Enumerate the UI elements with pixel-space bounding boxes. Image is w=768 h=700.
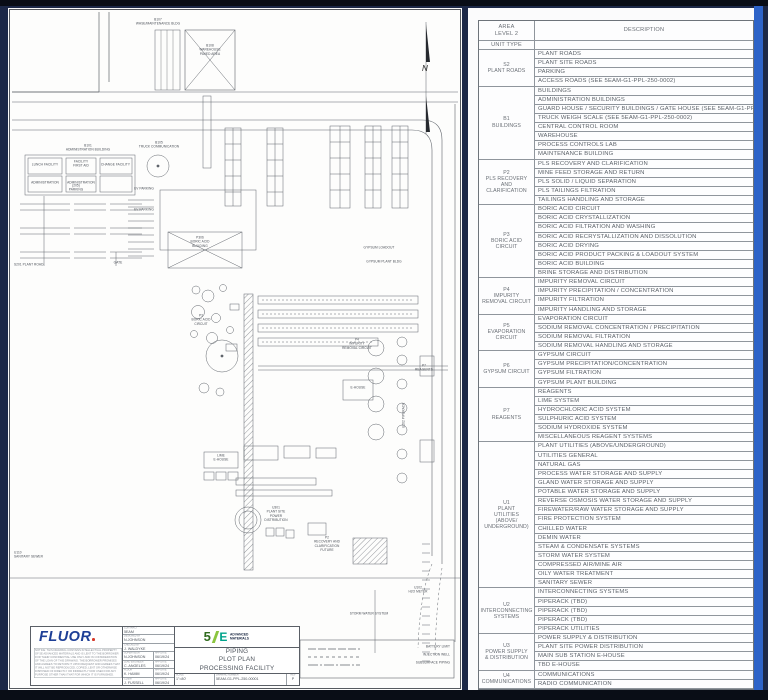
plot-label: EV PARKING — [124, 208, 164, 212]
plot-label: U202 PIPERACK — [402, 368, 406, 428]
legend-group-s2: S2 PLANT ROADS — [479, 50, 535, 87]
legend-injection-well-label: INJECTION WELL — [392, 653, 450, 657]
fluor-dot-icon — [92, 638, 95, 641]
plot-label: P4 IMPURITY REMOVAL CIRCUIT — [332, 338, 382, 350]
legend-row: STEAM & CONDENSATE SYSTEMS — [535, 543, 753, 552]
legend-row: BUILDINGS — [535, 87, 753, 96]
title-field-value: J. FUSSELL — [124, 682, 152, 685]
legend-row: CENTRAL CONTROL ROOM — [535, 123, 753, 132]
title-field-row: CHECKED BYJ. WALDYKE — [123, 644, 174, 652]
legend-row: COMMUNICATIONS — [535, 671, 753, 680]
legend-row: IMPURITY REMOVAL CIRCUIT — [535, 278, 753, 287]
plot-label: (205) PARKING — [56, 184, 96, 192]
legend-row: BORIC ACID BUILDING — [535, 260, 753, 269]
legend-row: NATURAL GAS — [535, 461, 753, 470]
legend-row: SANITARY SEWER — [535, 579, 753, 588]
header-empty — [535, 41, 753, 50]
legend-row: BORIC ACID PRODUCT PACKING & LOADOUT SYS… — [535, 251, 753, 260]
legend-subsurface-label: SUBSURFACE PIPING — [392, 661, 450, 665]
legend-row: TBD E-HOUSE — [535, 661, 753, 670]
legend-row: INTERCONNECTING SYSTEMS — [535, 588, 753, 597]
legend-row: IMPURITY HANDLING AND STORAGE — [535, 306, 753, 315]
app-date-label: APP DATE — [155, 669, 173, 672]
title-field-value: 5EAM — [124, 631, 173, 634]
title-field-label: FLUOR — [124, 669, 152, 672]
legend-row: WAREHOUSE — [535, 132, 753, 141]
title-field-label: CHECKED BY — [124, 644, 173, 647]
fluor-logo-text: FLUOR — [39, 629, 91, 645]
plot-label: LIME E-HOUSE — [204, 454, 238, 462]
legend-battery-limit-label: BATTERY LIMIT — [392, 645, 450, 649]
plot-label: FACILITY FIRST AID — [67, 160, 95, 168]
legend-row: COMPRESSED AIR/MINE AIR — [535, 561, 753, 570]
app-date-value: 06/19/24 — [155, 673, 173, 676]
plot-label: GYPSUM PLANT BLDG — [352, 260, 416, 264]
legend-row: SODIUM HYDROXIDE SYSTEM — [535, 424, 753, 433]
legend-row: MISCELLANEOUS REAGENT SYSTEMS — [535, 433, 753, 442]
drawing-number-cell: DRAWING NUMBER 5EAM-G1-PPL-250-00001 — [215, 674, 287, 685]
legend-row: IMPURITY PRECIPITATION / CONCENTRATION — [535, 287, 753, 296]
legend-group-u2: U2 INTERCONNECTING SYSTEMS — [479, 588, 535, 634]
legend-row: MINE FEED STORAGE AND RETURN — [535, 169, 753, 178]
app-date-value: 06/19/24 — [155, 656, 173, 659]
title-field-value: J. WALDYKE — [124, 648, 173, 651]
plot-label: P7 REAGENTS — [408, 364, 440, 372]
top-black-band — [0, 0, 768, 6]
legend-row: UTILITIES GENERAL — [535, 452, 753, 461]
plot-label: EV PARKING — [124, 187, 164, 191]
legend-row: GYPSUM PRECIPITATION/CONCENTRATION — [535, 360, 753, 369]
title-field-label: LEAD ENGINEER — [124, 661, 152, 664]
legend-row: GUARD HOUSE / SECURITY BUILDINGS / GATE … — [535, 105, 753, 114]
5e-logo-e: E — [219, 630, 227, 644]
legend-row: IMPURITY FILTRATION — [535, 296, 753, 305]
legend-row: PLANT UTILITIES (ABOVE/UNDERGROUND) — [535, 442, 753, 451]
drawing-title-row: PIPING PLOT PLAN PROCESSING FACILITY — [175, 648, 299, 674]
legend-row: BORIC ACID DRYING — [535, 242, 753, 251]
rev-cell: REV P — [287, 674, 299, 685]
legend-row: SODIUM REMOVAL CONCENTRATION / PRECIPITA… — [535, 324, 753, 333]
plot-label: B105 TRUCK COMMUNICATION — [122, 141, 196, 149]
legend-row: MAINTENANCE BUILDING — [535, 150, 753, 159]
scale-value: 1"=80' — [176, 678, 213, 682]
plot-label: GATE — [103, 261, 133, 265]
legend-row: STORM WATER SYSTEM — [535, 552, 753, 561]
legend-table: AREA LEVEL 2 DESCRIPTION UNIT TYPE S2 PL… — [478, 20, 754, 690]
title-field-value: N.JOHNSON — [124, 639, 173, 642]
5e-logo-slash-icon — [212, 631, 219, 643]
app-date-value: 06/19/24 — [155, 682, 173, 685]
legend-row: DEMIN WATER — [535, 534, 753, 543]
legend-row: ADMINISTRATION BUILDINGS — [535, 96, 753, 105]
plot-label: B107 WHSE/MAINTENANCE BLDG — [103, 18, 213, 26]
legend-table-grid: S2 PLANT ROADSPLANT ROADSPLANT SITE ROAD… — [479, 50, 753, 689]
legend-row: SULPHURIC ACID SYSTEM — [535, 415, 753, 424]
drawing-title: PIPING PLOT PLAN PROCESSING FACILITY — [200, 648, 275, 674]
right-accent-strip — [754, 6, 763, 692]
legend-row: PLS TAILINGS FILTRATION — [535, 187, 753, 196]
header-unit-type: UNIT TYPE — [479, 41, 535, 50]
legend-row: FIRE PROTECTION SYSTEM — [535, 515, 753, 524]
plot-label: U110 SANITARY SEWER — [14, 551, 69, 559]
legend-row: PROCESS CONTROLS LAB — [535, 141, 753, 150]
title-field-label: SUPERVISOR — [124, 652, 152, 655]
plot-label: U301 PLANT SITE POWER DISTRIBUTION — [252, 506, 300, 523]
legend-row: EVAPORATION CIRCUIT — [535, 315, 753, 324]
legend-row: GYPSUM CIRCUIT — [535, 351, 753, 360]
5e-logo-five: 5 — [204, 629, 211, 644]
legend-row: PIPERACK (TBD) — [535, 598, 753, 607]
legend-group-p6: P6 GYPSUM CIRCUIT — [479, 351, 535, 388]
legend-group-p7: P7 REAGENTS — [479, 388, 535, 443]
legend-row: MAIN SUB STATION E-HOUSE — [535, 652, 753, 661]
title-field-value: N.JOHNSON — [124, 656, 152, 659]
legend-row: BORIC ACID FILTRATION AND WASHING — [535, 223, 753, 232]
rev-value: P — [288, 678, 298, 682]
plot-plan-sheet: B107 WHSE/MAINTENANCE BLDG B108 WAREHOUS… — [8, 8, 462, 690]
plot-label: GYPSUM LOADOUT — [346, 246, 412, 250]
title-field-row: LEAD ENGINEERC. ANGELESAPP DATE06/19/24 — [123, 661, 174, 669]
app-date-label: APP DATE — [155, 652, 173, 655]
title-field-row: SUPERVISORN.JOHNSONAPP DATE06/19/24 — [123, 652, 174, 660]
legend-row: TAILINGS HANDLING AND STORAGE — [535, 196, 753, 205]
legend-row: SODIUM REMOVAL FILTRATION — [535, 333, 753, 342]
legend-row: BRINE STORAGE AND DISTRIBUTION — [535, 269, 753, 278]
legend-row: PIPERACK (TBD) — [535, 616, 753, 625]
legend-row: RADIO COMMUNICATION — [535, 680, 753, 689]
legend-group-u4: U4 COMMUNICATIONS — [479, 671, 535, 689]
title-field-value: K. HAMM — [124, 673, 152, 676]
title-field-row: CONTRACT5EAM — [123, 627, 174, 635]
5e-brand-logo: 5 E ADVANCED MATERIALS — [175, 627, 299, 648]
legend-row: PLANT SITE ROADS — [535, 59, 753, 68]
legend-row: REAGENTS — [535, 388, 753, 397]
scale-cell: SCALE 1"=80' — [175, 674, 215, 685]
legend-row: TRUCK WEIGH SCALE (SEE 5EAM-G1-PPL-250-0… — [535, 114, 753, 123]
title-field-row: DESIGNED BYN.JOHNSON — [123, 635, 174, 643]
plot-label: B108 WAREHOUSE PAVED AREA — [180, 44, 240, 56]
legend-row: FIREWATER/RAW WATER STORAGE AND SUPPLY — [535, 506, 753, 515]
legend-row: POWER SUPPLY & DISTRIBUTION — [535, 634, 753, 643]
plot-label: STORM WATER SYSTEM — [328, 612, 410, 616]
north-arrow-icon — [426, 22, 430, 134]
legend-row: OILY WATER TREATMENT — [535, 570, 753, 579]
drawing-meta-row: SCALE 1"=80' DRAWING NUMBER 5EAM-G1-PPL-… — [175, 673, 299, 685]
title-field-label: CONTRACT — [124, 627, 173, 630]
drawing-number-value: 5EAM-G1-PPL-250-00001 — [216, 678, 285, 682]
legend-row: BORIC ACID RECRYSTALLIZATION AND DISSOLU… — [535, 233, 753, 242]
legend-row: ACCESS ROADS (SEE 5EAM-G1-PPL-250-0002) — [535, 77, 753, 86]
title-field-label: CLIENT — [124, 678, 152, 681]
header-area-level: AREA LEVEL 2 — [479, 21, 535, 41]
legend-row: REVERSE OSMOSIS WATER STORAGE AND SUPPLY — [535, 497, 753, 506]
plot-label: U102 H2O METER — [396, 586, 440, 594]
legend-group-p2: P2 PLS RECOVERY AND CLARIFICATION — [479, 160, 535, 206]
notice-text: NOTICE: THIS DRAWING CONTAINS INTELLECTU… — [34, 648, 122, 678]
legend-group-u3: U3 POWER SUPPLY & DISTRIBUTION — [479, 634, 535, 671]
title-block-main-cell: 5 E ADVANCED MATERIALS PIPING PLOT PLAN … — [175, 627, 299, 685]
plot-plan-linework — [8, 8, 462, 690]
north-label: N — [418, 64, 432, 74]
app-date-label: APP DATE — [155, 678, 173, 681]
legend-row: PLS SOLID / LIQUID SEPARATION — [535, 178, 753, 187]
header-description: DESCRIPTION — [535, 21, 753, 41]
legend-row: PIPERACK UTILITIES — [535, 625, 753, 634]
legend-row: GLAND WATER STORAGE AND SUPPLY — [535, 479, 753, 488]
legend-row: GYPSUM PLANT BUILDING — [535, 379, 753, 388]
plot-label: P306 BORIC ACID BUILDING — [178, 236, 222, 248]
title-fields: CONTRACT5EAMDESIGNED BYN.JOHNSONCHECKED … — [123, 627, 175, 685]
legend-row: PARKING — [535, 68, 753, 77]
title-field-row: CLIENTJ. FUSSELLAPP DATE06/19/24 — [123, 678, 174, 685]
legend-group-p3: P3 BORIC ACID CIRCUIT — [479, 205, 535, 278]
title-field-row: FLUORK. HAMMAPP DATE06/19/24 — [123, 669, 174, 677]
legend-row: PLANT SITE POWER DISTRIBUTION — [535, 643, 753, 652]
legend-group-u1: U1 PLANT UTILITIES (ABOVE/ UNDERGROUND) — [479, 442, 535, 588]
legend-row: PIPERACK (TBD) — [535, 607, 753, 616]
legend-group-b1: B1 BUILDINGS — [479, 87, 535, 160]
legend-row: BORIC ACID CIRCUIT — [535, 205, 753, 214]
plot-label: P3 BORIC ACID CIRCUIT — [180, 314, 222, 326]
legend-group-p5: P5 EVAPORATION CIRCUIT — [479, 315, 535, 352]
title-field-value: C. ANGELES — [124, 665, 152, 668]
legend-panel: AREA LEVEL 2 DESCRIPTION UNIT TYPE S2 PL… — [468, 8, 754, 690]
legend-row: POTABLE WATER STORAGE AND SUPPLY — [535, 488, 753, 497]
legend-row: SODIUM REMOVAL HANDLING AND STORAGE — [535, 342, 753, 351]
app-date-label: APP DATE — [155, 661, 173, 664]
fluor-logo: FLUOR — [39, 629, 95, 645]
legend-table-header: AREA LEVEL 2 DESCRIPTION UNIT TYPE — [479, 21, 753, 50]
plot-label: P2 RECOVERY AND CLARIFICATION FUTURE — [302, 536, 352, 553]
legend-row: PROCESS WATER STORAGE AND SUPPLY — [535, 470, 753, 479]
legend-row: GYPSUM FILTRATION — [535, 369, 753, 378]
title-block-notice-cell: FLUOR NOTICE: THIS DRAWING CONTAINS INTE… — [31, 627, 123, 685]
title-block: FLUOR NOTICE: THIS DRAWING CONTAINS INTE… — [30, 626, 300, 686]
legend-row: PLS RECOVERY AND CLARIFICATION — [535, 160, 753, 169]
bottom-black-band — [0, 690, 768, 700]
app-date-value: 06/19/24 — [155, 665, 173, 668]
5e-brand-name: ADVANCED MATERIALS — [230, 633, 270, 641]
legend-row: PLANT ROADS — [535, 50, 753, 59]
plot-label: LUNCH FACILITY — [29, 163, 61, 167]
legend-row: BORIC ACID CRYSTALLIZATION — [535, 214, 753, 223]
legend-row: LIME SYSTEM — [535, 397, 753, 406]
plot-label: S201 PLANT ROAD — [14, 263, 84, 267]
legend-row: HYDROCHLORIC ACID SYSTEM — [535, 406, 753, 415]
plot-label: E-HOUSE — [342, 386, 374, 390]
legend-row: CHILLED WATER — [535, 525, 753, 534]
legend-group-p4: P4 IMPURITY REMOVAL CIRCUIT — [479, 278, 535, 315]
screenshot-frame: B107 WHSE/MAINTENANCE BLDG B108 WAREHOUS… — [0, 0, 768, 700]
plot-label: CHANGE FACILITY — [100, 163, 131, 167]
